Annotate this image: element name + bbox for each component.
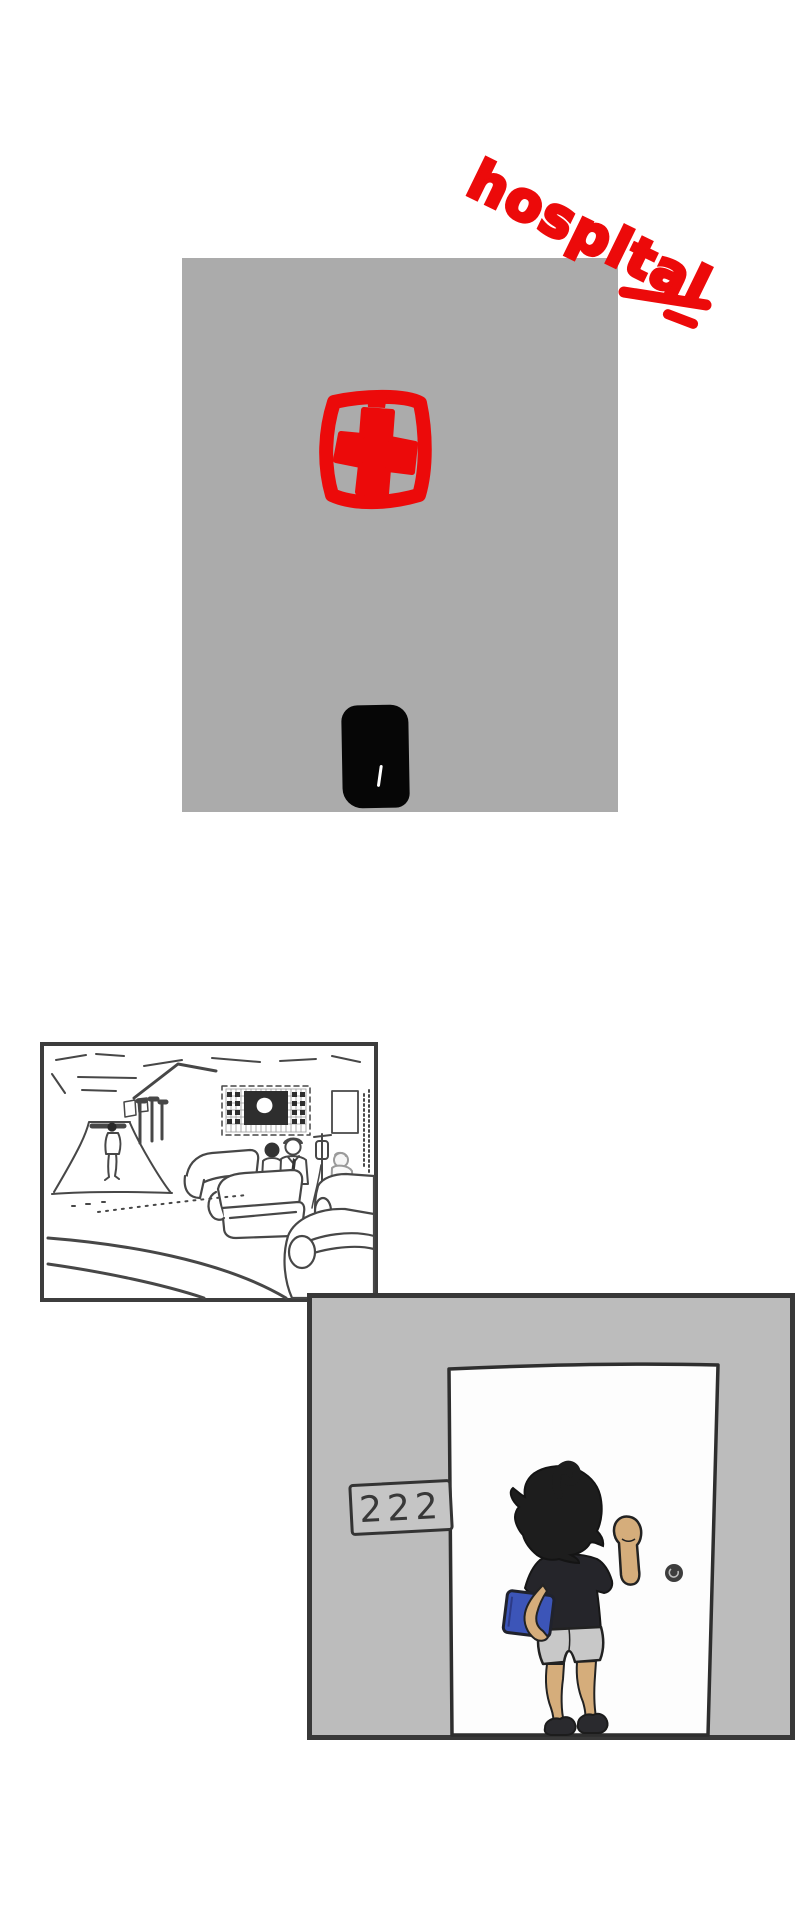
corridor [52,1098,172,1194]
tv-screen [222,1086,310,1135]
door-knob-icon [665,1564,683,1582]
right-shoe [578,1714,608,1733]
building-entrance-door [341,704,410,808]
hospital-cross-icon [310,386,442,516]
room-number-text: 222 [358,1486,444,1531]
hallway-panel: 222 [307,1293,795,1740]
comic-page: hospital [0,0,800,1910]
walking-person [105,1122,120,1180]
hallway-scene: 222 [312,1298,790,1735]
left-shoe [545,1717,576,1735]
room-number-sign: 222 [350,1480,452,1534]
shorts-seam [569,1629,570,1650]
waiting-room-sketch [44,1046,374,1298]
ceiling-lines [52,1054,360,1098]
door-highlight [377,765,383,787]
waiting-room-panel [40,1042,378,1302]
